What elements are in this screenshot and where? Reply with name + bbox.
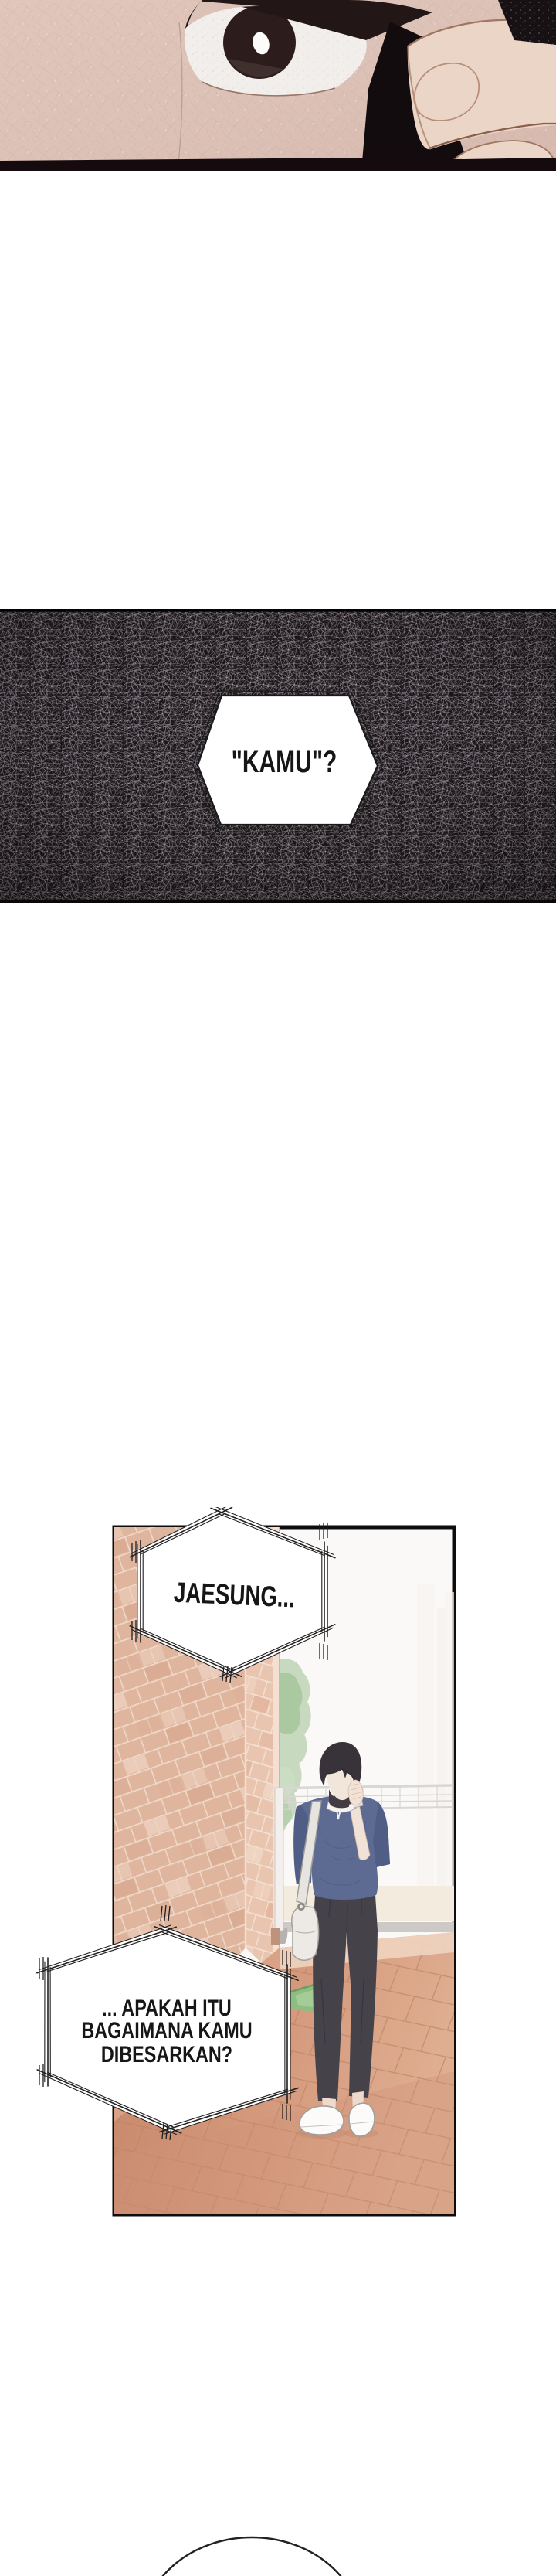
svg-text:"KAMU"?: "KAMU"? [232, 745, 337, 779]
svg-text:BAGAIMANA KAMU: BAGAIMANA KAMU [81, 2017, 252, 2043]
svg-text:JAESUNG...: JAESUNG... [173, 1576, 296, 1614]
svg-text:DIBESARKAN?: DIBESARKAN? [101, 2041, 232, 2067]
